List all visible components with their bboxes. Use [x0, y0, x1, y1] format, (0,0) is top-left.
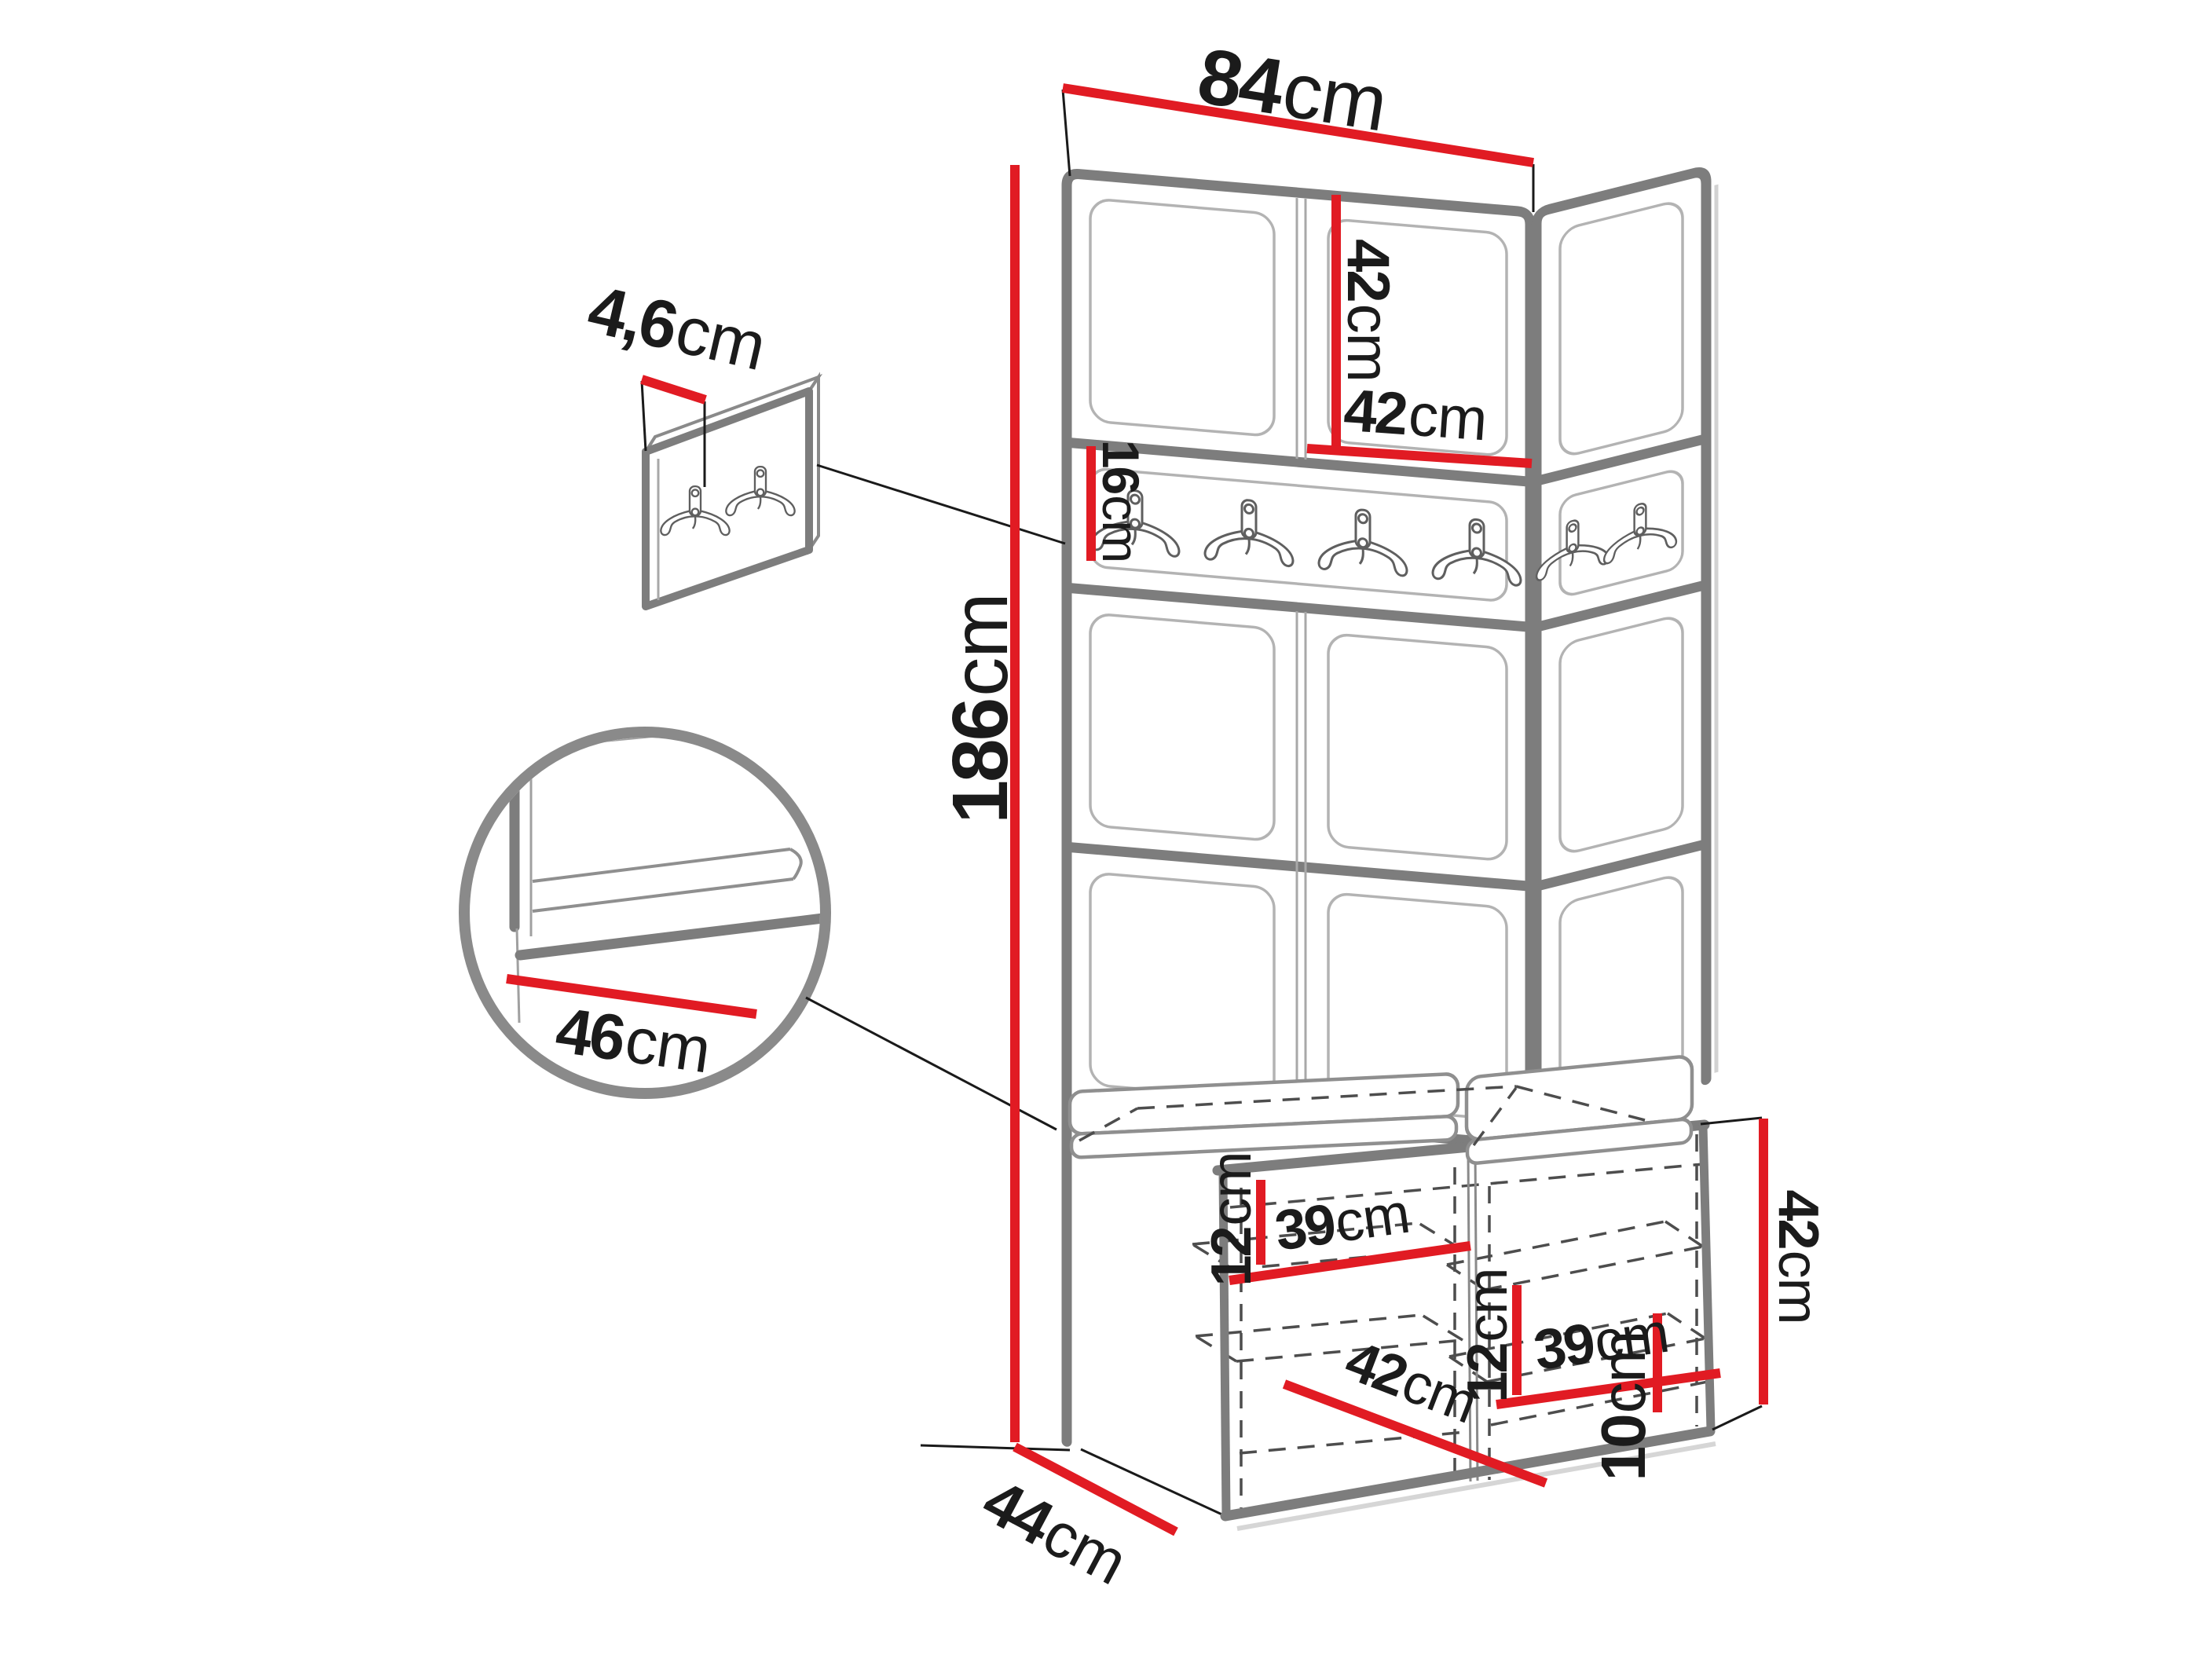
dimension-value: 16 [1092, 440, 1150, 494]
dimension-label-bench-height: 42cm [1767, 1189, 1829, 1324]
dimension-value: 4,6 [581, 271, 683, 364]
dimension-unit: cm [1767, 1251, 1829, 1324]
dimension-unit: cm [621, 1004, 715, 1086]
dimension-unit: cm [1588, 1331, 1658, 1414]
dimension-unit: cm [1200, 1152, 1263, 1225]
dimension-label-total-height: 186cm [936, 593, 1024, 823]
hook-panel-detail [646, 377, 1065, 606]
dimension-value: 42 [1767, 1189, 1829, 1248]
dimension-unit: cm [1335, 304, 1401, 382]
dimension-label-bench-depth: 44cm [972, 1465, 1137, 1598]
dimension-value: 186 [936, 700, 1024, 824]
dimension-label-upper-cabinet-width: 42cm [1342, 377, 1489, 453]
wardrobe-right-section [1536, 167, 1716, 1141]
dimension-label-upper-cabinet-height: 42cm [1335, 239, 1401, 382]
dimension-unit: cm [1277, 45, 1393, 148]
dimension-unit: cm [1092, 495, 1150, 562]
dimension-unit: cm [936, 593, 1024, 696]
dimension-label-plinth-height: 10cm [1588, 1331, 1658, 1481]
dimension-value: 84 [1192, 31, 1291, 132]
dimension-label-hook-panel-thickness: 4,6cm [581, 271, 772, 385]
dimension-unit: cm [669, 291, 772, 385]
dimension-value: 46 [551, 994, 628, 1075]
diagram-canvas: 84cm 186cm 42cm 42cm 4,6cm 16cm 46cm 12c… [0, 0, 2212, 1659]
floor-line [921, 1445, 1070, 1450]
dimension-value: 39 [1271, 1192, 1338, 1263]
dimension-label-total-width: 84cm [1192, 31, 1393, 148]
dimension-value: 10 [1588, 1415, 1658, 1481]
furniture-dimension-diagram: 84cm 186cm 42cm 42cm 4,6cm 16cm 46cm 12c… [0, 0, 2212, 1659]
dimension-value: 42 [1335, 239, 1401, 301]
dimension-unit: cm [1456, 1268, 1519, 1342]
dimension-value: 12 [1200, 1227, 1263, 1286]
dim-line-panel-thickness [642, 379, 705, 400]
leader-line-panel [817, 465, 1065, 544]
dimension-label-left-shelf-spacing: 12cm [1200, 1152, 1263, 1286]
dimension-unit: cm [1331, 1182, 1413, 1254]
dimension-label-hook-rail-height: 16cm [1092, 440, 1150, 562]
dimension-unit: cm [1406, 382, 1489, 454]
dimension-value: 42 [1342, 377, 1408, 448]
